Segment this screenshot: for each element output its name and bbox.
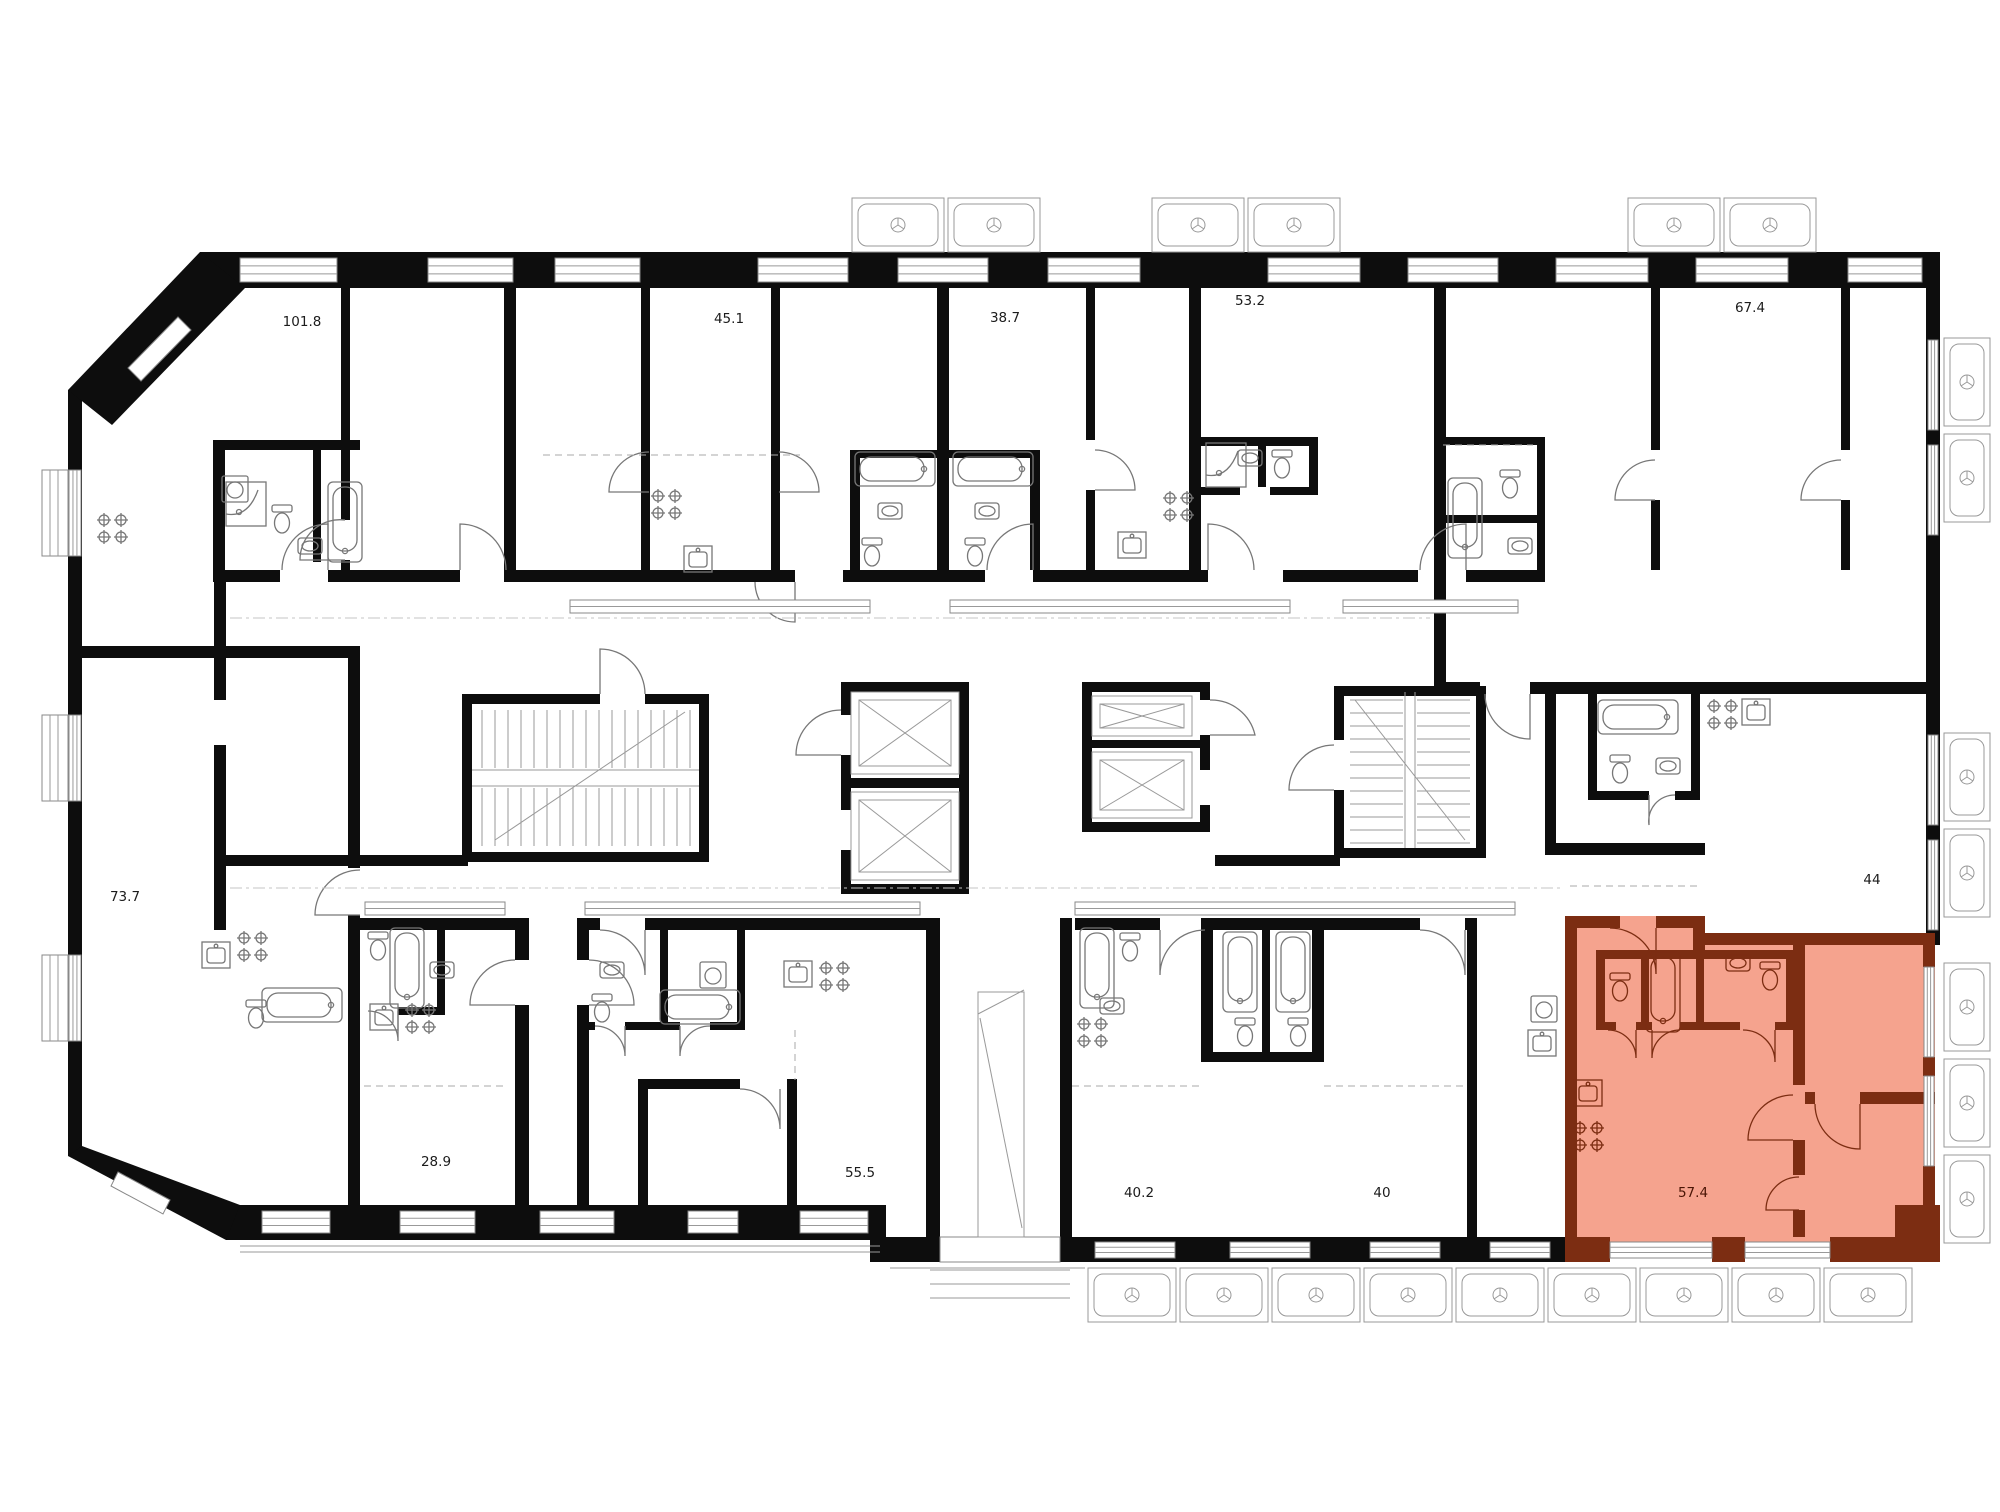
bay-window: [42, 715, 68, 801]
highlight-wall: [1641, 959, 1649, 1030]
wall: [841, 682, 851, 715]
window: [1924, 1076, 1934, 1166]
wall: [225, 440, 360, 450]
wall: [1651, 500, 1660, 570]
area-label-apt-40: 40: [1373, 1185, 1390, 1201]
wall: [1060, 918, 1072, 1262]
window: [262, 1211, 330, 1233]
highlight-wall: [1775, 1022, 1795, 1030]
wall: [437, 930, 445, 1015]
window: [800, 1211, 868, 1233]
wall: [504, 285, 516, 582]
wall: [771, 285, 780, 570]
window: [540, 1211, 614, 1233]
wall: [589, 918, 600, 930]
entrance-opening: [940, 1237, 1060, 1262]
area-label-apt-53-2: 53.2: [1235, 293, 1265, 309]
wall: [1841, 500, 1850, 570]
window: [1370, 1242, 1440, 1258]
wall: [841, 682, 969, 692]
area-label-apt-28-9: 28.9: [421, 1154, 451, 1170]
wall: [1434, 285, 1446, 694]
window: [69, 715, 81, 801]
wall: [1691, 694, 1700, 800]
highlight-wall: [1565, 916, 1577, 1250]
highlight-wall: [1793, 1210, 1805, 1237]
window: [688, 1211, 738, 1233]
wall: [577, 1005, 589, 1207]
window: [1848, 258, 1922, 282]
wall: [1651, 285, 1660, 450]
window: [69, 470, 81, 556]
wall: [625, 1022, 680, 1030]
window: [1408, 258, 1498, 282]
wall: [1530, 682, 1940, 694]
wall: [1082, 682, 1210, 692]
highlight-wall: [1805, 1092, 1815, 1104]
window: [1928, 445, 1938, 535]
area-label-apt-57-4: 57.4: [1678, 1185, 1708, 1201]
wall: [787, 1079, 797, 1225]
wall: [515, 918, 529, 960]
wall: [1201, 437, 1313, 446]
highlight-wall: [1596, 950, 1605, 1030]
area-label-apt-45-1: 45.1: [714, 311, 744, 327]
highlight-wall: [1596, 950, 1795, 959]
area-label-apt-101-8: 101.8: [283, 314, 322, 330]
wall: [1082, 740, 1210, 748]
wall: [348, 915, 360, 1207]
wall: [214, 745, 226, 930]
highlight-wall: [1636, 1022, 1652, 1030]
wall: [585, 1022, 595, 1030]
area-label-apt-38-7: 38.7: [990, 310, 1020, 326]
wall: [1030, 450, 1040, 570]
wall: [348, 646, 360, 868]
wall: [1201, 918, 1213, 1060]
wall: [641, 285, 650, 570]
wall: [515, 1005, 529, 1207]
wall: [843, 570, 985, 582]
wall: [1443, 515, 1537, 523]
floor-plan: 101.845.138.753.267.473.74428.955.540.24…: [0, 0, 2000, 1512]
floor-plan-stage: 101.845.138.753.267.473.74428.955.540.24…: [0, 0, 2000, 1512]
wall: [1537, 445, 1545, 570]
window: [1556, 258, 1648, 282]
wall: [1033, 570, 1208, 582]
wall: [1334, 790, 1344, 858]
wall: [1443, 437, 1545, 445]
wall: [1466, 570, 1545, 582]
wall: [841, 884, 969, 894]
wall: [328, 570, 460, 582]
wall: [1334, 848, 1486, 858]
wall: [462, 852, 709, 862]
wall: [937, 285, 949, 582]
highlight-wall: [1596, 1022, 1616, 1030]
window: [555, 258, 640, 282]
window: [898, 258, 988, 282]
window: [1928, 340, 1938, 430]
wall: [220, 570, 280, 582]
wall: [462, 694, 600, 704]
wall: [1201, 1052, 1324, 1062]
highlight-wall: [1793, 1140, 1805, 1175]
wall: [577, 918, 589, 960]
wall: [1200, 735, 1210, 770]
area-label-apt-55-5: 55.5: [845, 1165, 875, 1181]
wall: [638, 1079, 648, 1225]
wall: [341, 420, 350, 520]
highlight-wall: [1923, 1057, 1935, 1076]
wall: [1467, 918, 1477, 1237]
wall: [870, 1205, 886, 1262]
wall: [1283, 570, 1418, 582]
wall: [1200, 682, 1210, 700]
wall: [1312, 918, 1324, 1060]
wall: [1086, 285, 1095, 440]
wall: [214, 582, 226, 700]
wall: [841, 850, 851, 894]
wall: [313, 450, 321, 562]
wall: [341, 285, 350, 420]
window: [1095, 1242, 1175, 1258]
highlight-wall: [1712, 1237, 1745, 1262]
area-label-apt-73-7: 73.7: [110, 889, 140, 905]
wall: [1082, 682, 1092, 832]
wall: [1588, 791, 1649, 800]
wall: [841, 755, 851, 810]
highlight-wall: [1696, 959, 1704, 1030]
wall: [959, 682, 969, 894]
window: [758, 258, 848, 282]
wall: [1189, 285, 1201, 582]
wall: [213, 440, 225, 582]
wall: [462, 694, 472, 862]
window: [1230, 1242, 1310, 1258]
wall: [1675, 791, 1700, 800]
window: [1696, 258, 1788, 282]
window: [1610, 1242, 1712, 1258]
highlight-wall: [1693, 916, 1705, 950]
window: [1048, 258, 1140, 282]
window: [1928, 840, 1938, 930]
highlight-wall: [1565, 1237, 1610, 1262]
wall: [1545, 694, 1556, 855]
wall: [1082, 822, 1210, 832]
wall: [1334, 686, 1486, 696]
wall: [841, 778, 969, 788]
highlight-wall: [1705, 933, 1935, 945]
window: [1490, 1242, 1550, 1258]
bay-window: [42, 470, 68, 556]
wall: [638, 1079, 740, 1089]
area-label-apt-67-4: 67.4: [1735, 300, 1765, 316]
wall: [1262, 930, 1270, 1060]
highlight-wall: [1923, 945, 1935, 967]
wall: [1270, 487, 1318, 495]
window: [428, 258, 513, 282]
wall: [737, 930, 745, 1030]
window: [69, 955, 81, 1041]
wall: [699, 694, 709, 862]
window: [1924, 967, 1934, 1057]
wall: [710, 1022, 745, 1030]
wall: [1334, 686, 1344, 740]
window: [1268, 258, 1360, 282]
wall: [660, 930, 668, 1022]
wall: [1201, 487, 1240, 495]
wall: [1588, 694, 1597, 800]
highlight-wall: [1830, 1237, 1940, 1262]
wall: [1551, 843, 1705, 855]
area-label-apt-40-2: 40.2: [1124, 1185, 1154, 1201]
window: [1745, 1242, 1830, 1258]
area-label-apt-44: 44: [1863, 872, 1880, 888]
wall: [1215, 855, 1340, 866]
wall: [1200, 805, 1210, 832]
window: [400, 1211, 475, 1233]
wall: [1086, 490, 1095, 570]
wall: [508, 570, 795, 582]
bay-window: [42, 955, 68, 1041]
window: [240, 258, 337, 282]
wall: [360, 918, 515, 930]
highlight-wall: [1680, 1022, 1740, 1030]
highlight-wall: [1793, 945, 1805, 1085]
wall: [645, 918, 926, 930]
window: [1928, 735, 1938, 825]
wall: [1476, 686, 1486, 858]
wall: [926, 918, 940, 1262]
wall: [1841, 285, 1850, 450]
highlight-wall: [1565, 916, 1620, 928]
wall: [226, 855, 468, 866]
